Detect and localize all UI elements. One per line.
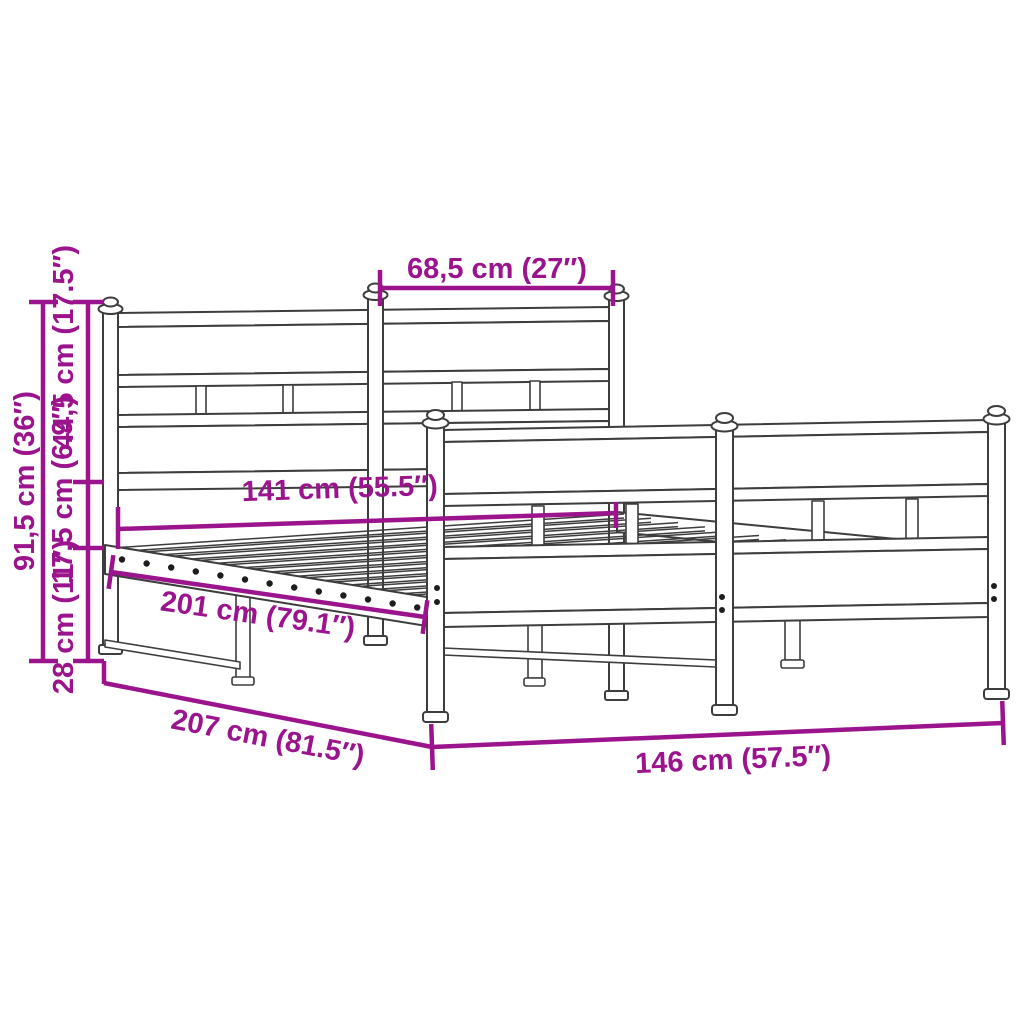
bed-frame-drawing	[99, 284, 1010, 723]
product-dimension-diagram: 68,5 cm (27″) 91,5 cm (36″) 44,5 cm (17.…	[0, 0, 1024, 1024]
footboard-post-left	[427, 424, 444, 714]
footboard-slat	[532, 506, 544, 548]
headboard-post-left-knob	[103, 298, 118, 307]
support-leg-right-foot	[781, 660, 804, 668]
dim-label-headboard-section-width: 68,5 cm (27″)	[407, 253, 587, 285]
rail-screw-hole	[168, 564, 174, 570]
bed-frame-diagram: 68,5 cm (27″) 91,5 cm (36″) 44,5 cm (17.…	[0, 0, 1024, 1024]
rail-screw-hole	[316, 588, 322, 594]
footboard-post-center-knob	[716, 413, 733, 423]
dim-label-inner-width: 141 cm (55.5″)	[241, 470, 438, 508]
rail-screw-hole	[389, 600, 395, 606]
rail-screw-hole	[291, 584, 297, 590]
dimension-tick	[1002, 701, 1004, 745]
rail-screw-hole	[143, 560, 149, 566]
footboard-post-left-knob	[427, 410, 444, 420]
headboard-upper-panel	[118, 321, 609, 375]
footboard-post-center	[716, 427, 733, 708]
rail-screw-hole	[414, 604, 420, 610]
rail-screw-hole	[217, 572, 223, 578]
footboard-slat	[906, 499, 918, 539]
stretcher-bar-right	[443, 648, 716, 667]
dim-headboard-section-width: 68,5 cm (27″)	[380, 253, 613, 306]
footboard-post-right-foot	[984, 689, 1009, 699]
screw-dot	[991, 596, 997, 602]
footboard-slat	[626, 504, 638, 546]
rail-screw-hole	[119, 556, 125, 562]
screw-dot	[434, 585, 440, 591]
support-leg-left-foot	[232, 677, 254, 685]
screw-dot	[719, 594, 725, 600]
headboard-post-center	[368, 296, 383, 638]
headboard-post-left	[103, 310, 118, 648]
footboard-post-left-foot	[423, 712, 448, 722]
rail-screw-hole	[340, 592, 346, 598]
screw-dot	[719, 607, 725, 613]
stretcher-bar-left	[105, 640, 240, 669]
headboard-post-center-foot	[364, 636, 387, 645]
rail-screw-hole	[365, 596, 371, 602]
dim-outer-length: 207 cm (81.5″)	[104, 661, 432, 772]
screw-dot	[434, 599, 440, 605]
dim-label-headboard-total-height: 91,5 cm (36″)	[9, 391, 41, 571]
screw-dot	[991, 583, 997, 589]
rail-screw-hole	[266, 580, 272, 586]
support-leg-center-foot	[524, 678, 545, 686]
dim-height-segments: 44,5 cm (17.5″) 17,5 cm (6.9″) 28 cm (11…	[47, 245, 104, 694]
footboard-slat	[812, 501, 824, 543]
dim-label-outer-width: 146 cm (57.5″)	[634, 740, 831, 780]
headboard-post-right-foot	[605, 691, 628, 700]
footboard-post-right-knob	[988, 406, 1005, 416]
dimension-tick	[431, 724, 433, 770]
rail-screw-hole	[242, 576, 248, 582]
dim-label-underbed-clearance-height: 28 cm (11″)	[48, 540, 80, 694]
footboard-post-center-foot	[712, 705, 737, 715]
footboard	[423, 406, 1010, 722]
dimension-line	[432, 723, 1003, 747]
footboard-post-right	[988, 420, 1005, 692]
rail-screw-hole	[193, 568, 199, 574]
